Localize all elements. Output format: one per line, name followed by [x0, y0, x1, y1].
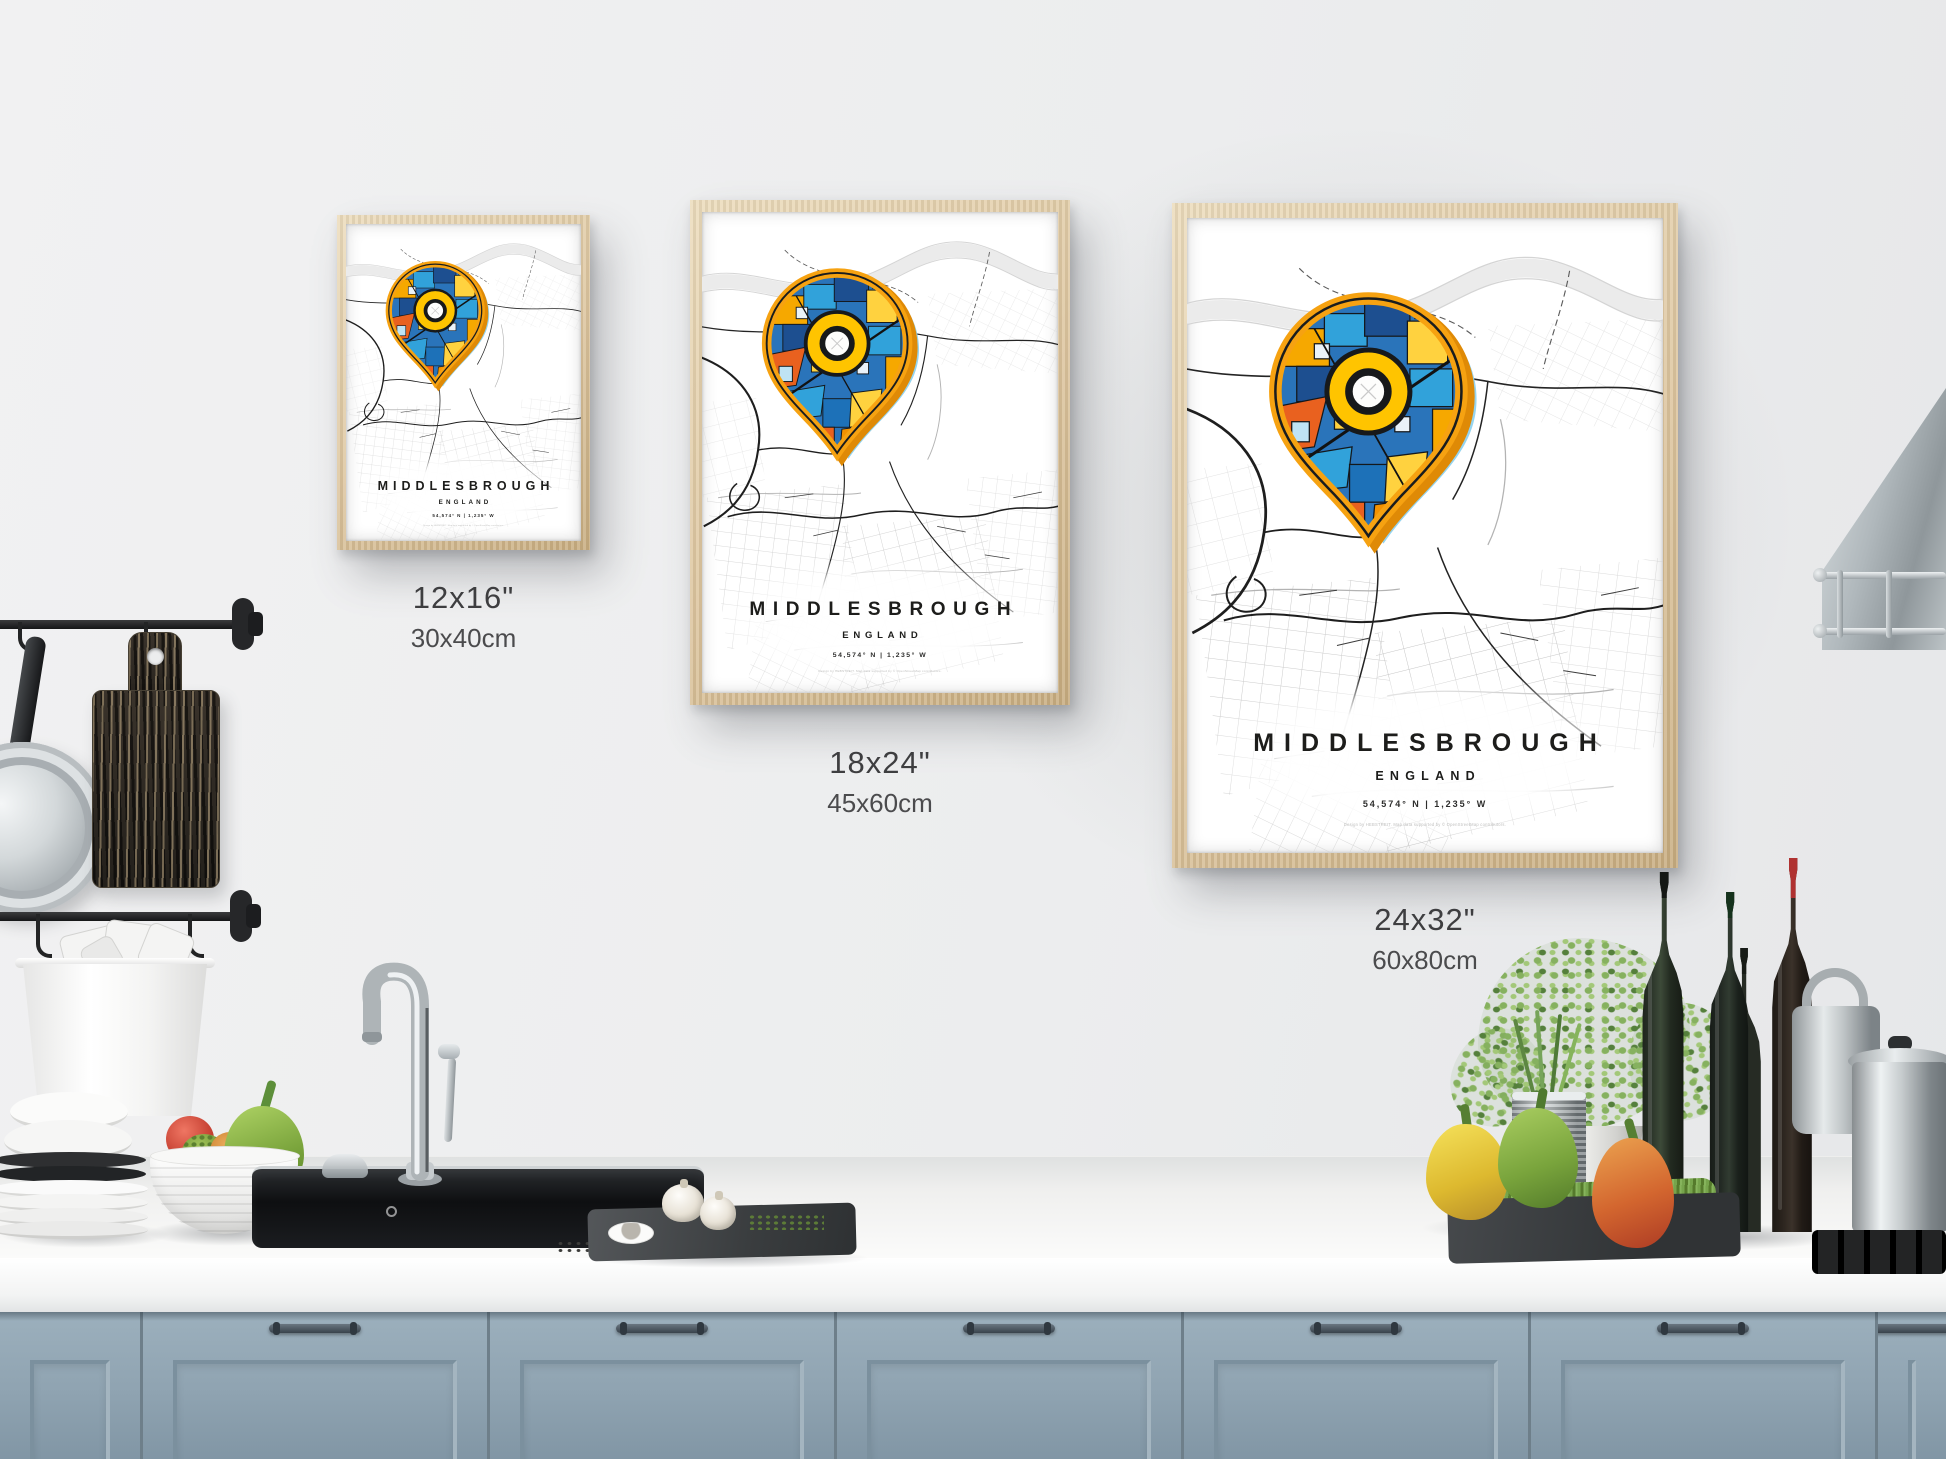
cabinet-row	[0, 1312, 1946, 1459]
size-centimeters: 30x40cm	[337, 623, 590, 654]
s-hook	[36, 914, 52, 958]
size-label-small: 12x16" 30x40cm	[337, 580, 590, 654]
poster-title: MIDDLESBROUGH	[346, 479, 581, 493]
poster-large-frame: MIDDLESBROUGH ENGLAND 54,574° N | 1,235°…	[1172, 203, 1678, 868]
poster-region: ENGLAND	[346, 499, 581, 506]
poster-small-frame: MIDDLESBROUGH ENGLAND 54,574° N | 1,235°…	[337, 215, 590, 550]
rail-end-knob	[246, 904, 261, 928]
poster-region: ENGLAND	[702, 630, 1058, 641]
rail-end-knob	[248, 612, 263, 636]
range-hood-post	[1837, 570, 1843, 638]
cabinet-door	[143, 1312, 487, 1459]
poster-caption: MIDDLESBROUGH ENGLAND 54,574° N | 1,235°…	[1187, 729, 1663, 827]
cabinet-handle	[616, 1324, 708, 1333]
cutting-board-hole	[147, 648, 164, 665]
size-inches: 12x16"	[337, 580, 590, 616]
size-centimeters: 45x60cm	[690, 788, 1070, 819]
poster-coordinates: 54,574° N | 1,235° W	[702, 652, 1058, 659]
cabinet-door	[837, 1312, 1181, 1459]
cabinet-door	[1184, 1312, 1528, 1459]
poster-credit: Design by HEBSTREIT. Map data supported …	[702, 669, 1058, 673]
poster-title: MIDDLESBROUGH	[702, 599, 1058, 621]
range-hood-post	[1886, 570, 1892, 638]
poster-caption: MIDDLESBROUGH ENGLAND 54,574° N | 1,235°…	[346, 479, 581, 527]
cabinet-handle	[963, 1324, 1055, 1333]
cabinet-door	[490, 1312, 834, 1459]
gas-stove-grate	[1812, 1230, 1946, 1274]
size-label-medium: 18x24" 45x60cm	[690, 745, 1070, 819]
poster-coordinates: 54,574° N | 1,235° W	[1187, 799, 1663, 809]
cabinet-door	[1531, 1312, 1875, 1459]
range-hood-knob	[1813, 568, 1827, 582]
size-inches: 24x32"	[1172, 902, 1678, 938]
bottle-cap	[1738, 948, 1749, 974]
poster-medium-print: MIDDLESBROUGH ENGLAND 54,574° N | 1,235°…	[702, 212, 1058, 693]
poster-caption: MIDDLESBROUGH ENGLAND 54,574° N | 1,235°…	[702, 599, 1058, 673]
pinch-bowl	[608, 1222, 654, 1244]
poster-title: MIDDLESBROUGH	[1187, 729, 1663, 758]
wall-rail-upper	[0, 620, 252, 629]
size-inches: 18x24"	[690, 745, 1070, 781]
garlic-bulb	[700, 1196, 736, 1230]
cabinet-handle	[1310, 1324, 1402, 1333]
garlic-bulb	[662, 1184, 704, 1222]
range-hood-knob	[1813, 624, 1827, 638]
counter-front-edge	[0, 1258, 1946, 1312]
stock-pot	[1852, 1062, 1946, 1232]
cabinet-door	[0, 1312, 140, 1459]
cabinet-handle	[269, 1324, 361, 1333]
poster-region: ENGLAND	[1187, 769, 1663, 783]
cabinet-door	[1878, 1312, 1946, 1459]
kitchen-poster-mockup-scene: MIDDLESBROUGH ENGLAND 54,574° N | 1,235°…	[0, 0, 1946, 1459]
faucet-lever-knob	[438, 1044, 460, 1059]
poster-small-print: MIDDLESBROUGH ENGLAND 54,574° N | 1,235°…	[346, 224, 581, 541]
poster-medium-frame: MIDDLESBROUGH ENGLAND 54,574° N | 1,235°…	[690, 200, 1070, 705]
poster-credit: Design by HEBSTREIT. Map data supported …	[346, 525, 581, 527]
bell-pepper-yellow	[1426, 1124, 1508, 1220]
cutting-board	[92, 690, 220, 888]
sink-logo	[386, 1206, 397, 1217]
cabinet-handle	[1878, 1324, 1946, 1333]
poster-coordinates: 54,574° N | 1,235° W	[346, 513, 581, 518]
chopped-herbs	[748, 1214, 824, 1230]
cabinet-handle	[1657, 1324, 1749, 1333]
poster-credit: Design by HEBSTREIT. Map data supported …	[1187, 822, 1663, 827]
poster-large-print: MIDDLESBROUGH ENGLAND 54,574° N | 1,235°…	[1187, 218, 1663, 853]
